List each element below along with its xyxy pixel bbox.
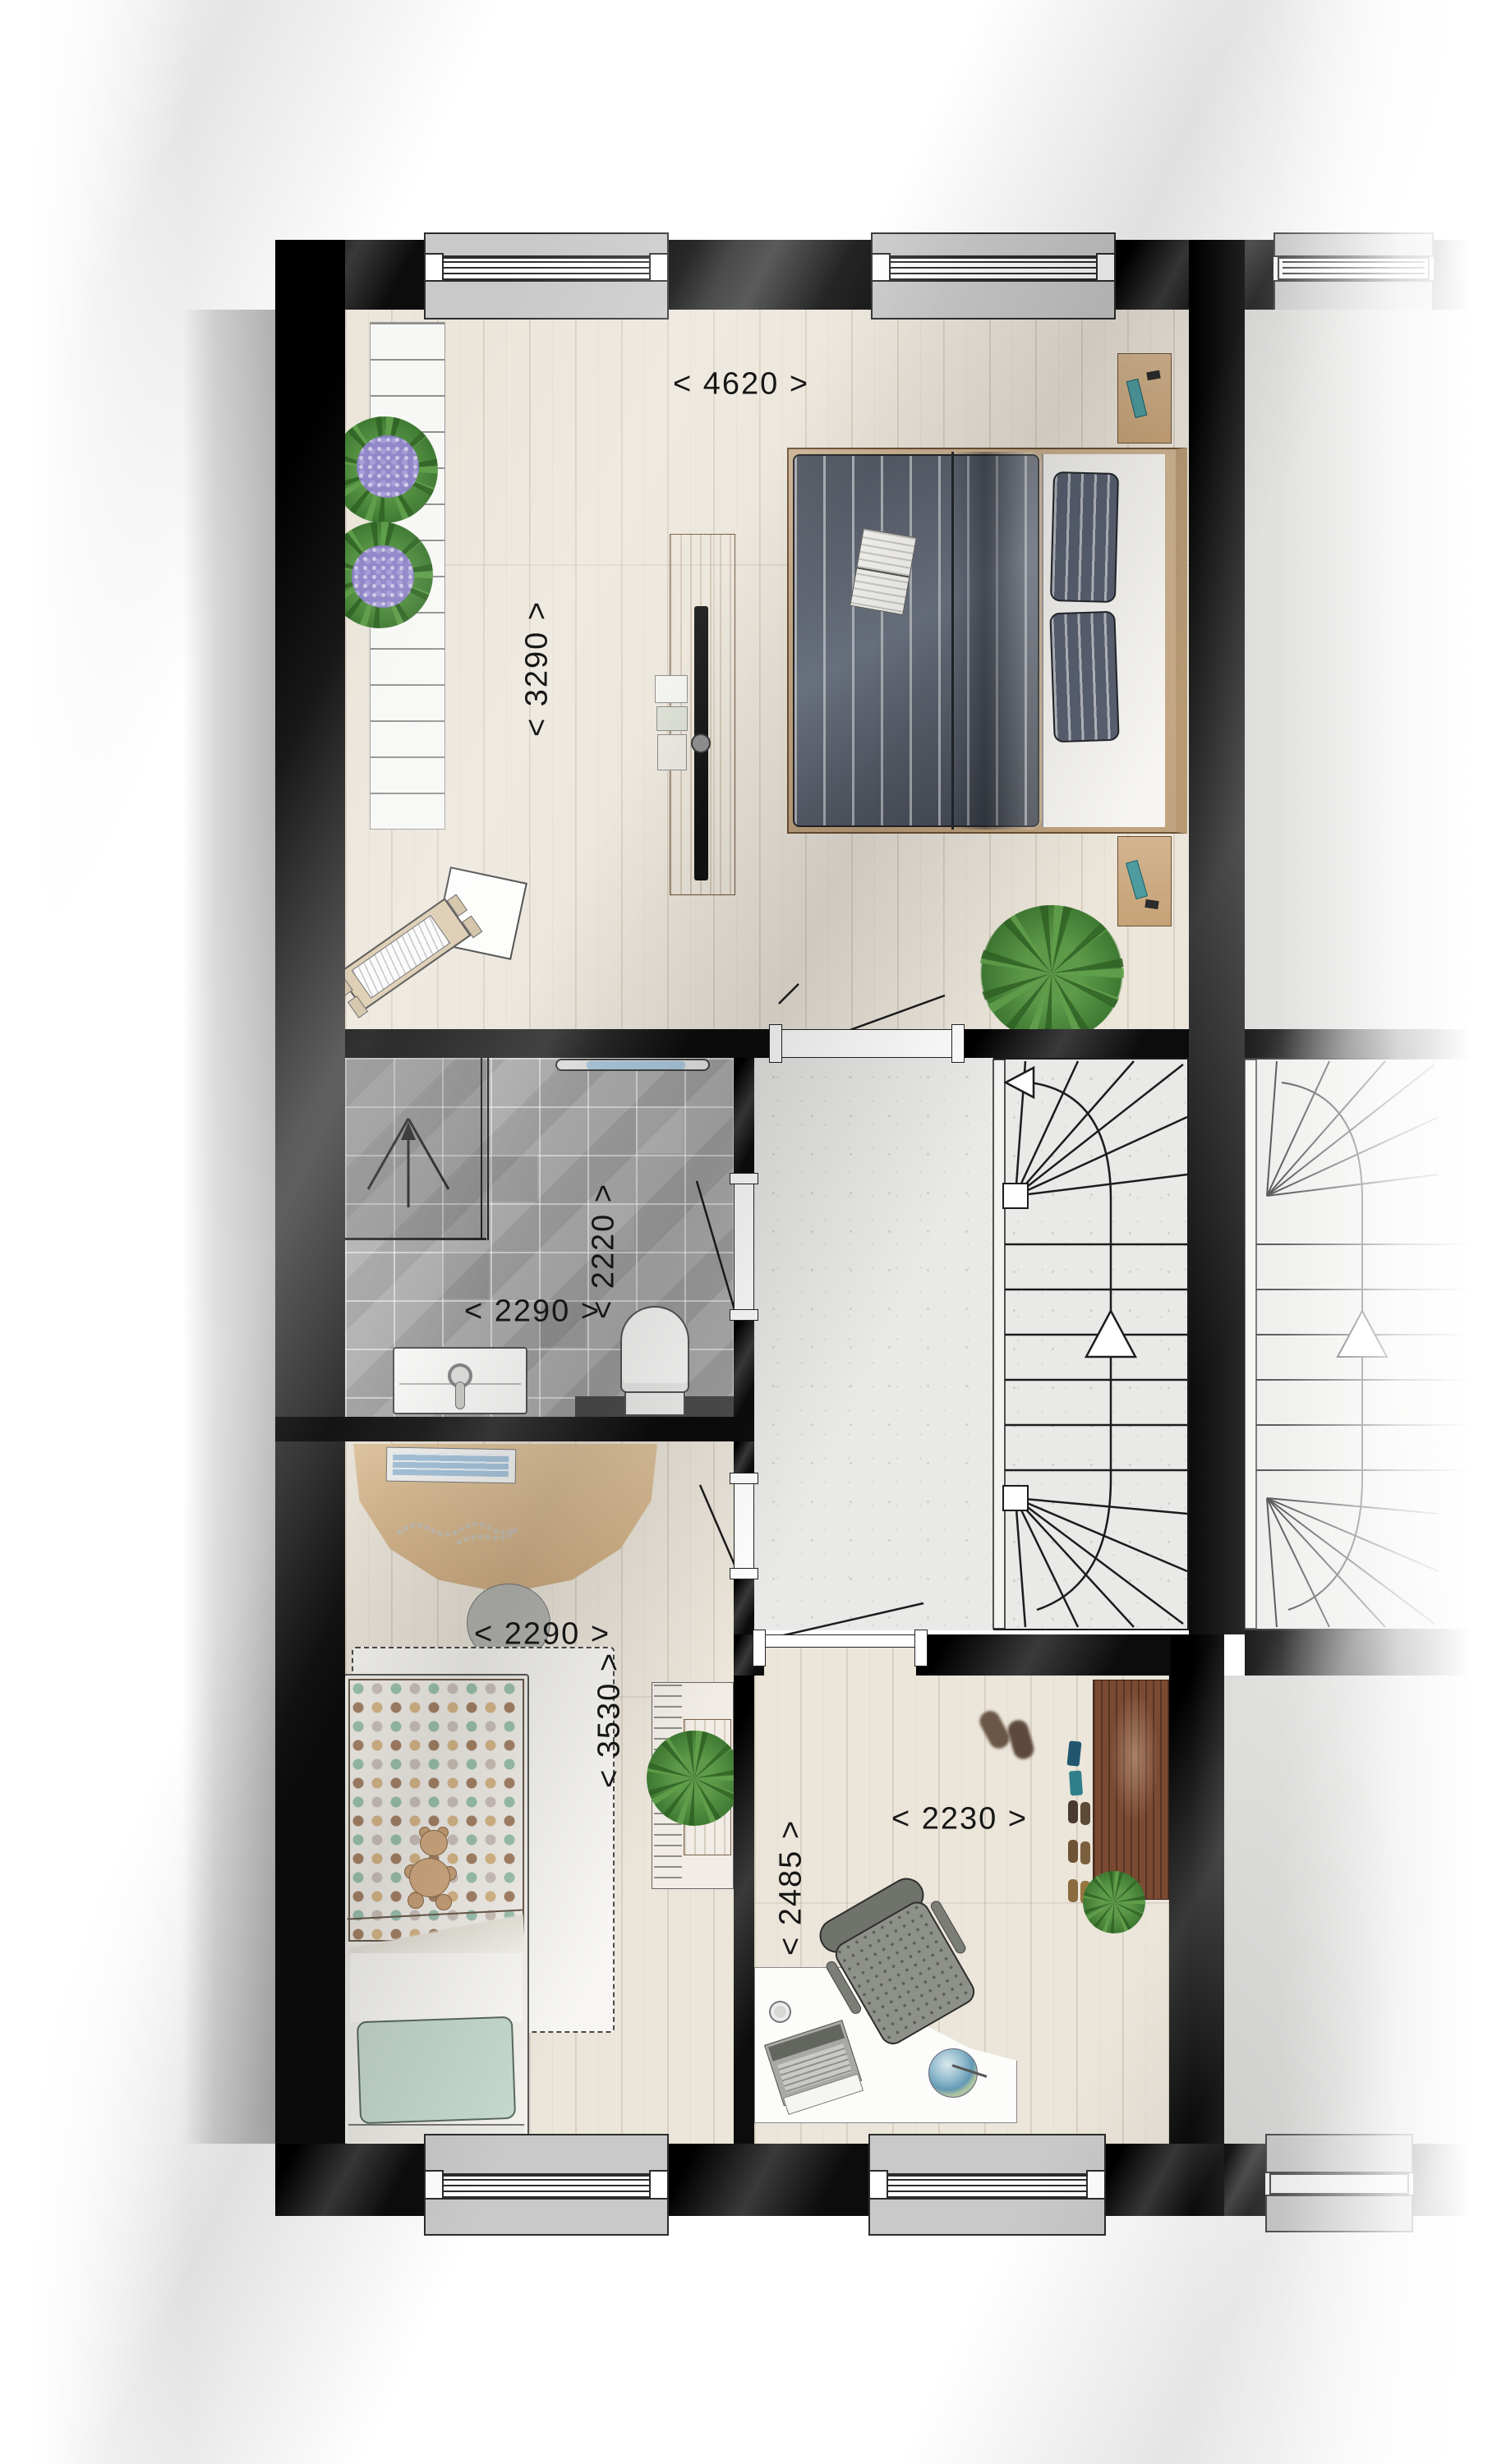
bathroom-bottom-wall [275,1417,754,1441]
bedroom2-study-wall [734,1676,754,2144]
dimension-label-master-depth: < 3290 > [520,600,555,737]
bedroom2-landing-wall [734,1573,754,1634]
master-bedroom-door-opening [781,1029,953,1058]
window-glazing [879,2179,1095,2194]
dimension-label-bath-width: < 2290 > [464,1294,601,1330]
stairs-study-wall [916,1634,1171,1676]
window-sill-inner [424,2134,669,2175]
study-door-opening [764,1634,916,1648]
bathroom-landing-wall [734,1058,754,1179]
door-jamb [730,1173,758,1184]
bottom-wall [275,2144,424,2216]
dimension-label-study-depth: < 2485 > [774,1819,809,1956]
neighbour-staircase-lines [1245,1060,1473,1629]
window-glazing [882,261,1105,276]
window-cap [424,2170,444,2201]
dimension-label-study-width: < 2230 > [891,1802,1028,1837]
top-wall [669,240,871,310]
bottom-wall [1106,2144,1224,2216]
bedroom-stairs-wall [953,1029,1189,1058]
window-sill-inner [424,280,669,319]
door-jamb [730,1473,758,1484]
floor-plan: < 4620 > < 3290 > < 2220 > < 2290 > < 22… [0,0,1506,2464]
window-sill-outer [424,232,669,257]
dimension-label-bed2-width: < 2290 > [474,1617,610,1653]
window-cap [649,2170,669,2201]
window-sill-outer [868,2198,1106,2236]
right-wall-lower [1169,1634,1224,2216]
dimension-label-master-width: < 4620 > [673,367,809,402]
bottom-wall [669,2144,868,2216]
door-jamb [914,1630,928,1666]
right-wall [1189,240,1245,1634]
window-sill-inner [871,280,1116,319]
door-jamb [730,1568,758,1579]
door-jamb [951,1024,965,1063]
bedroom2-door-opening [734,1478,754,1573]
pearl-necklace [399,1524,516,1542]
door-jamb [730,1309,758,1321]
left-wall [275,240,345,2144]
window-cap [1086,2170,1106,2201]
window-sill-outer [871,232,1116,257]
window-sill-outer [424,2198,669,2236]
shower-slope-arrow-icon [368,1119,449,1207]
bathroom-landing-wall [734,1314,754,1417]
window-sill-inner [868,2134,1106,2175]
bathroom-door-opening [734,1179,754,1314]
bedroom2-door [700,1485,737,1570]
window-glazing [435,261,658,276]
stair-entry-arrow-icon [1006,1068,1034,1097]
bathroom-door [697,1181,735,1312]
window-glazing [435,2179,658,2194]
bedroom-bathroom-wall [345,1029,781,1058]
dimension-label-bed2-depth: < 3530 > [592,1652,628,1788]
door-jamb [769,1024,782,1063]
door-jamb [753,1630,766,1666]
window-cap [868,2170,888,2201]
staircase [993,1060,1187,1629]
